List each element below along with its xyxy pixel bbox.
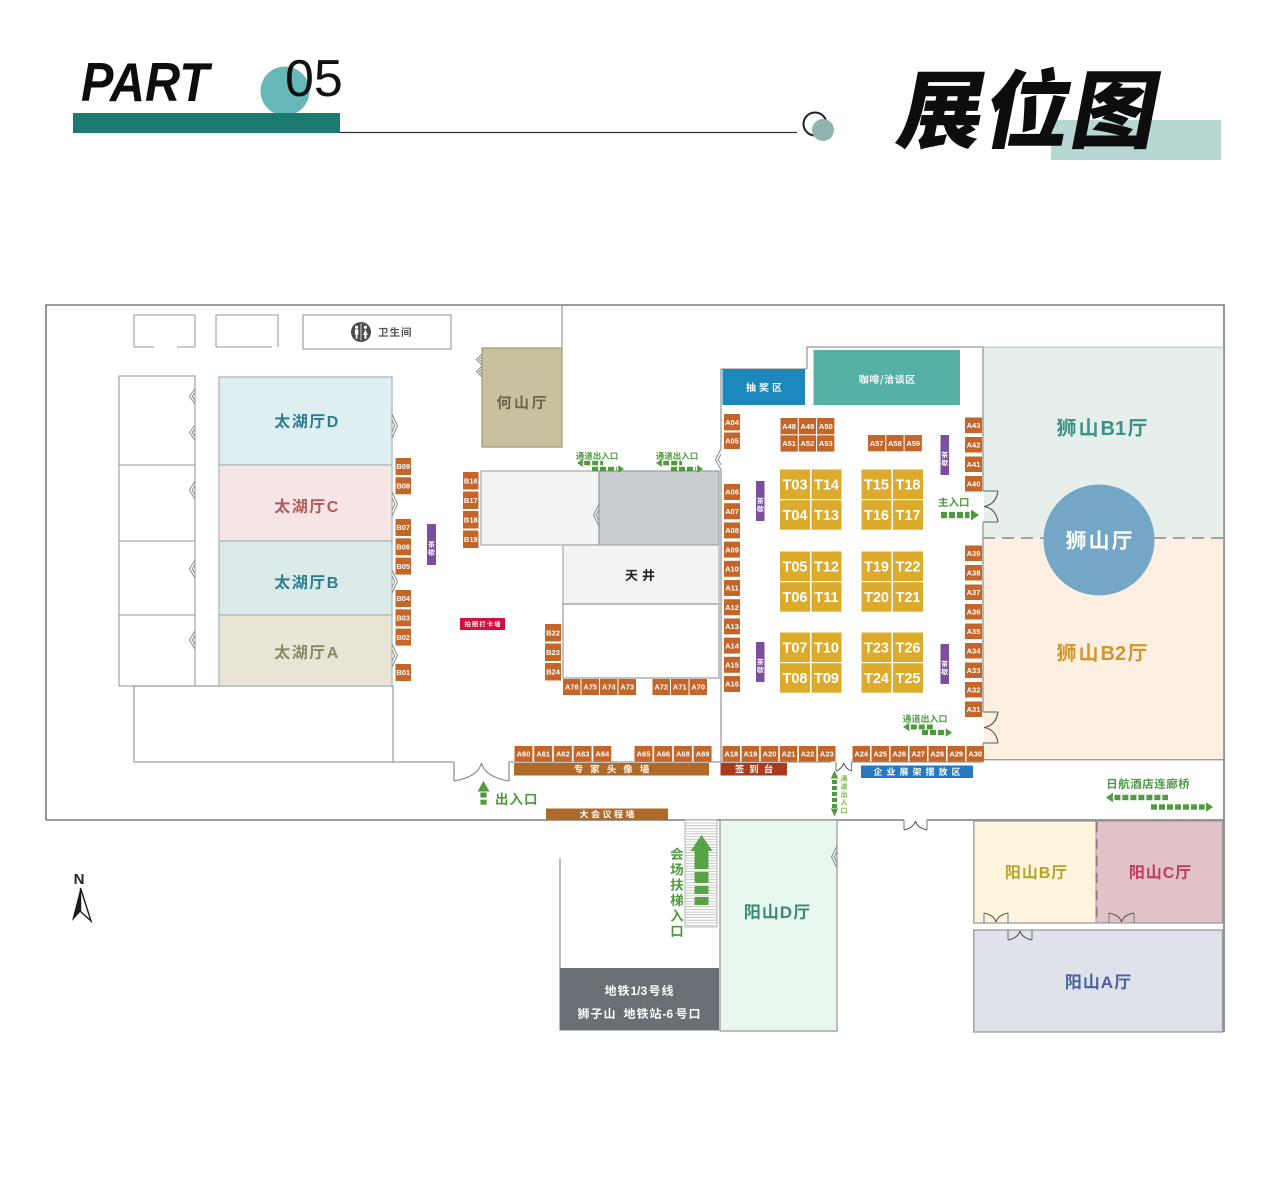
svg-text:1/3: 1/3 (631, 984, 648, 998)
svg-text:A36: A36 (967, 608, 981, 617)
svg-text:A32: A32 (967, 686, 981, 695)
svg-text:T10: T10 (814, 641, 839, 657)
svg-text:B23: B23 (546, 648, 560, 657)
svg-text:T24: T24 (864, 671, 889, 687)
svg-text:A61: A61 (536, 750, 550, 759)
svg-text:A66: A66 (656, 750, 670, 759)
svg-text:T12: T12 (814, 560, 839, 576)
svg-text:A21: A21 (782, 750, 796, 759)
svg-text:B22: B22 (546, 629, 560, 638)
svg-text:T19: T19 (864, 560, 889, 576)
svg-text:D: D (327, 414, 339, 431)
svg-text:A34: A34 (967, 647, 982, 656)
svg-text:A09: A09 (725, 545, 739, 554)
svg-text:B03: B03 (396, 614, 410, 623)
svg-text:C: C (327, 499, 339, 516)
svg-text:B18: B18 (464, 516, 478, 525)
svg-text:A23: A23 (820, 750, 834, 759)
svg-text:A19: A19 (744, 750, 758, 759)
svg-text:A20: A20 (763, 750, 777, 759)
svg-text:A05: A05 (725, 436, 739, 445)
svg-text:A13: A13 (725, 622, 739, 631)
svg-text:B16: B16 (464, 476, 478, 485)
svg-text:A72: A72 (654, 683, 668, 692)
svg-text:T20: T20 (864, 590, 889, 606)
svg-text:B17: B17 (464, 496, 478, 505)
svg-text:B2: B2 (1101, 643, 1127, 665)
svg-text:T13: T13 (814, 508, 839, 524)
svg-text:A07: A07 (725, 507, 739, 516)
svg-text:B06: B06 (396, 543, 410, 552)
svg-text:A: A (327, 645, 339, 662)
svg-text:A26: A26 (892, 750, 906, 759)
svg-text:A37: A37 (967, 588, 981, 597)
svg-text:B08: B08 (396, 482, 410, 491)
svg-text:T11: T11 (814, 590, 838, 606)
svg-text:A10: A10 (725, 565, 739, 574)
svg-text:B07: B07 (396, 523, 410, 532)
svg-text:B01: B01 (396, 668, 410, 677)
svg-text:T09: T09 (814, 671, 839, 687)
svg-text:T16: T16 (864, 508, 889, 524)
svg-text:T15: T15 (864, 478, 889, 494)
svg-text:A08: A08 (725, 526, 739, 535)
svg-text:A50: A50 (819, 422, 833, 431)
svg-text:A06: A06 (725, 488, 739, 497)
svg-text:A15: A15 (725, 661, 739, 670)
svg-text:A59: A59 (906, 439, 920, 448)
svg-text:T21: T21 (896, 590, 921, 606)
svg-text:A27: A27 (911, 750, 925, 759)
svg-text:T22: T22 (896, 560, 921, 576)
svg-text:T03: T03 (783, 478, 808, 494)
svg-text:A60: A60 (517, 750, 531, 759)
svg-text:A25: A25 (873, 750, 887, 759)
svg-text:N: N (74, 871, 85, 888)
svg-text:T25: T25 (896, 671, 921, 687)
svg-text:T14: T14 (814, 478, 839, 494)
svg-text:A71: A71 (673, 683, 687, 692)
svg-text:A28: A28 (930, 750, 944, 759)
svg-text:A39: A39 (967, 549, 981, 558)
svg-text:A: A (1101, 973, 1113, 992)
svg-text:B19: B19 (464, 535, 478, 544)
svg-text:T23: T23 (864, 641, 889, 657)
svg-text:A73: A73 (620, 683, 634, 692)
svg-text:A65: A65 (637, 750, 651, 759)
svg-text:PART: PART (81, 51, 213, 113)
svg-text:T08: T08 (783, 671, 808, 687)
svg-text:C: C (1163, 865, 1175, 882)
svg-text:A18: A18 (724, 750, 738, 759)
svg-text:A63: A63 (576, 750, 590, 759)
svg-text:A24: A24 (854, 750, 869, 759)
svg-text:A11: A11 (725, 584, 738, 593)
svg-text:A41: A41 (967, 460, 981, 469)
svg-text:A33: A33 (967, 666, 981, 675)
svg-text:A31: A31 (967, 705, 981, 714)
svg-text:A12: A12 (725, 603, 739, 612)
svg-text:T06: T06 (783, 590, 808, 606)
svg-text:T05: T05 (783, 560, 808, 576)
svg-text:A30: A30 (968, 750, 982, 759)
svg-text:A51: A51 (782, 439, 796, 448)
svg-text:A49: A49 (801, 422, 815, 431)
svg-text:A53: A53 (819, 439, 833, 448)
svg-text:A40: A40 (967, 479, 981, 488)
svg-text:B: B (1039, 865, 1051, 882)
svg-text:B04: B04 (396, 594, 411, 603)
svg-text:A52: A52 (801, 439, 815, 448)
svg-text:A75: A75 (583, 683, 597, 692)
svg-text:A69: A69 (696, 750, 710, 759)
svg-text:T07: T07 (783, 641, 808, 657)
svg-text:A57: A57 (870, 439, 884, 448)
svg-text:A70: A70 (691, 683, 705, 692)
svg-text:A48: A48 (782, 422, 796, 431)
svg-text:A16: A16 (725, 680, 739, 689)
svg-text:A68: A68 (676, 750, 690, 759)
svg-text:T04: T04 (783, 508, 808, 524)
svg-text:B05: B05 (396, 562, 410, 571)
svg-text:A22: A22 (801, 750, 815, 759)
svg-text:B1: B1 (1101, 418, 1127, 440)
svg-text:A14: A14 (725, 641, 740, 650)
svg-text:B24: B24 (546, 668, 561, 677)
svg-text:A35: A35 (967, 627, 981, 636)
svg-text:D: D (780, 903, 792, 922)
svg-text:B: B (327, 575, 339, 592)
svg-text:A64: A64 (595, 750, 610, 759)
svg-text:T26: T26 (896, 641, 921, 657)
svg-text:A43: A43 (967, 421, 981, 430)
svg-text:A76: A76 (565, 683, 579, 692)
svg-text:A62: A62 (556, 750, 570, 759)
svg-text:A38: A38 (967, 569, 981, 578)
svg-text:-6: -6 (663, 1007, 674, 1021)
svg-text:A29: A29 (949, 750, 963, 759)
svg-text:B09: B09 (396, 462, 410, 471)
svg-text:B02: B02 (396, 633, 410, 642)
svg-text:05: 05 (285, 50, 343, 108)
svg-text:T18: T18 (896, 478, 921, 494)
svg-text:A74: A74 (602, 683, 617, 692)
svg-text:A04: A04 (725, 418, 740, 427)
svg-text:A58: A58 (888, 439, 902, 448)
svg-text:A42: A42 (967, 440, 981, 449)
svg-text:T17: T17 (896, 508, 921, 524)
